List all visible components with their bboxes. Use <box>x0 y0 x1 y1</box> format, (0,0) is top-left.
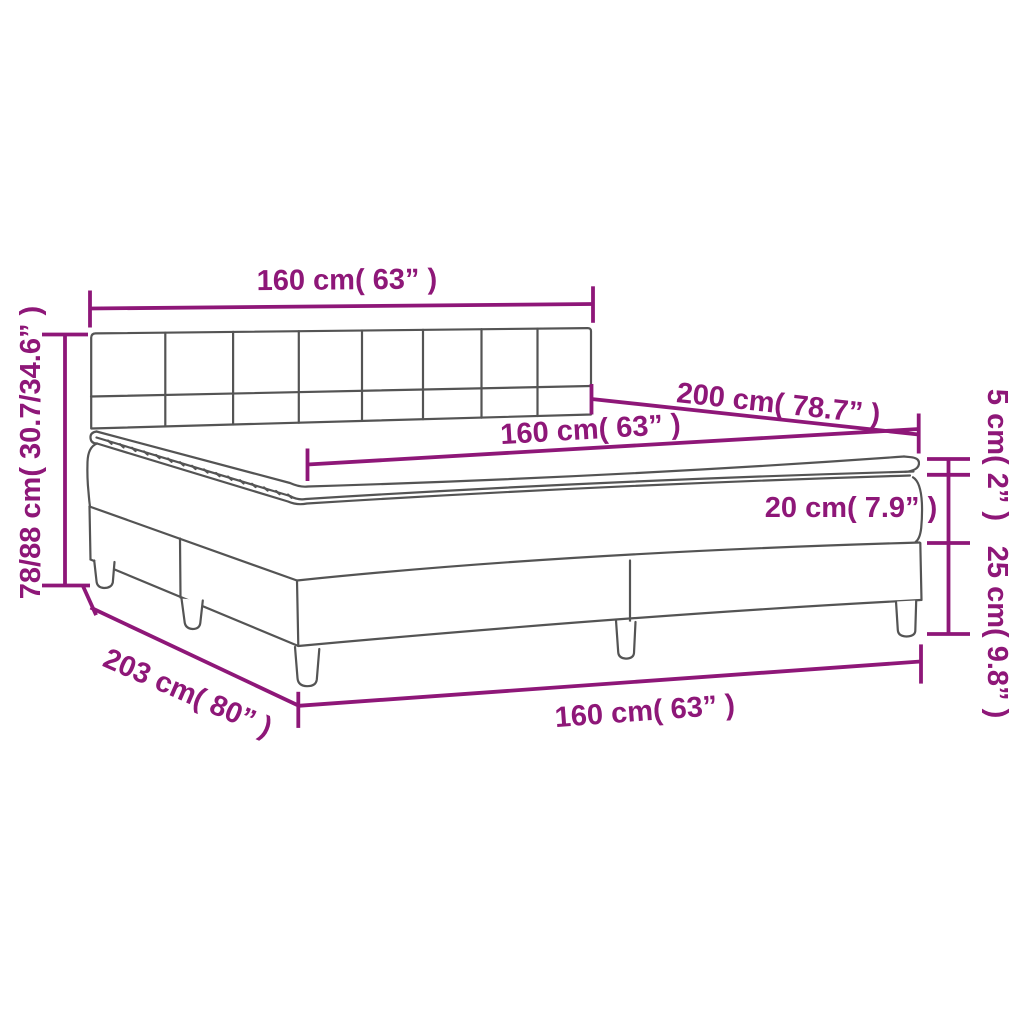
svg-text:25 cm( 9.8” ): 25 cm( 9.8” ) <box>981 546 1013 718</box>
svg-text:78/88 cm( 30.7/34.6” ): 78/88 cm( 30.7/34.6” ) <box>15 306 47 599</box>
svg-text:5 cm( 2” ): 5 cm( 2” ) <box>981 389 1013 521</box>
svg-text:20 cm( 7.9” ): 20 cm( 7.9” ) <box>765 492 937 524</box>
svg-text:160 cm( 63” ): 160 cm( 63” ) <box>257 264 438 298</box>
